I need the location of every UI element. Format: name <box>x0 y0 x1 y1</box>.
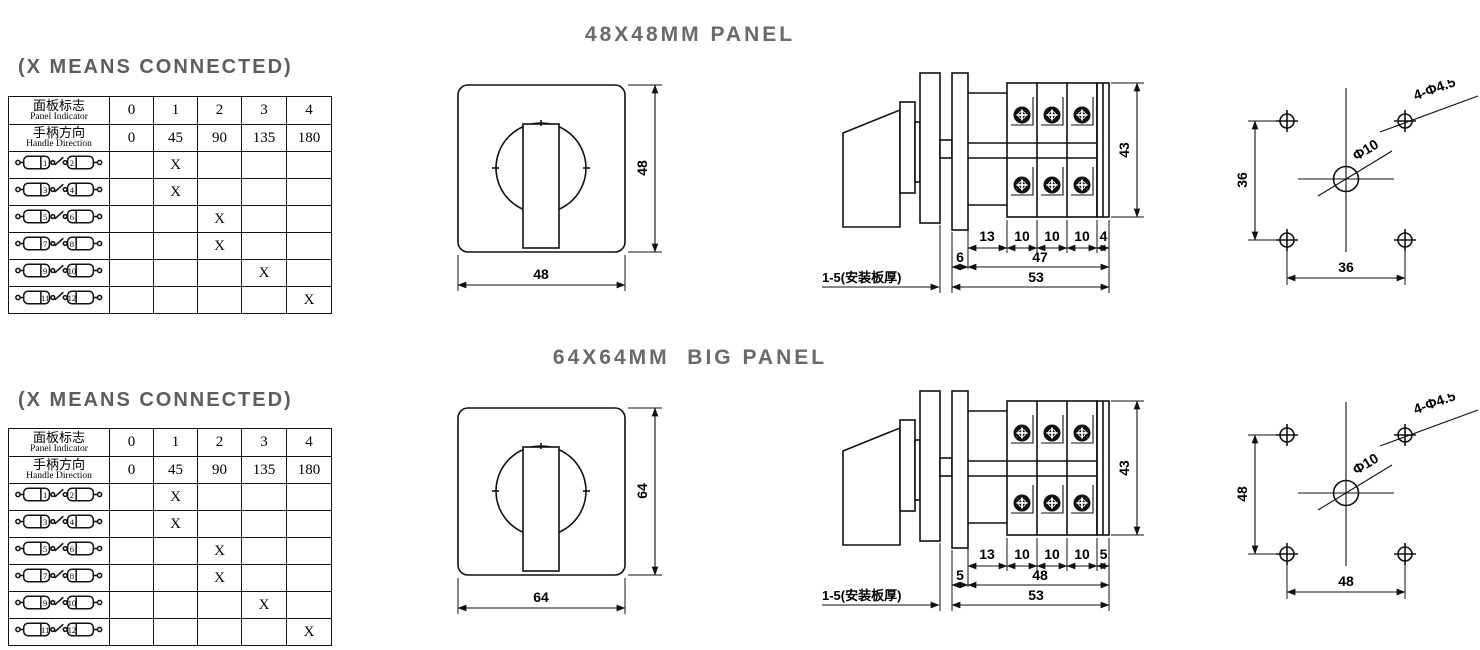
contact-row: 3 4 X <box>9 179 332 206</box>
mark-cell: X <box>242 260 287 287</box>
svg-text:48: 48 <box>1032 567 1048 583</box>
mark-cell <box>154 206 198 233</box>
contact-symbol: 7 8 <box>11 233 107 254</box>
mark-cell <box>198 511 242 538</box>
mark-cell <box>154 233 198 260</box>
direction-value: 180 <box>287 457 332 484</box>
svg-text:48: 48 <box>1338 573 1354 589</box>
terminal-number-left: 9 <box>43 266 47 276</box>
svg-text:43: 43 <box>1116 460 1132 476</box>
dimension-vertical-pitch: 36 <box>1234 121 1278 240</box>
screw-icon <box>1071 485 1093 513</box>
mark-cell <box>242 538 287 565</box>
mark-cell: X <box>242 592 287 619</box>
terminal-number-left: 1 <box>43 158 47 168</box>
svg-text:53: 53 <box>1028 587 1044 603</box>
mark-cell <box>198 592 242 619</box>
mark-cell <box>287 233 332 260</box>
table-header-row-indicator: 面板标志 Panel Indicator 0 1 2 3 4 <box>9 97 332 125</box>
dimension-height: 48 <box>628 85 662 252</box>
svg-text:1-5(安装板厚): 1-5(安装板厚) <box>822 588 901 603</box>
dimension-height: 64 <box>628 408 662 575</box>
contact-symbol: 9 10 <box>11 592 107 613</box>
contact-row: 5 6 X <box>9 206 332 233</box>
indicator-value: 2 <box>198 429 242 457</box>
handle-direction-cn: 手柄方向 <box>9 458 109 472</box>
svg-text:43: 43 <box>1116 142 1132 158</box>
dimension-body-height: 43 <box>1111 83 1144 217</box>
terminal-number-right: 12 <box>68 625 77 635</box>
contact-symbol: 1 2 <box>11 484 107 505</box>
contact-symbol-cell: 9 10 <box>9 260 110 287</box>
terminal-screws <box>1011 97 1093 195</box>
side-view-48: 43 13 10 10 10 4 6 47 53 1-5(安装板厚) <box>820 57 1155 305</box>
svg-text:36: 36 <box>1338 259 1354 275</box>
direction-value: 135 <box>242 457 287 484</box>
contact-symbol-cell: 7 8 <box>9 233 110 260</box>
contact-row: 1 2 X <box>9 484 332 511</box>
contact-symbol: 7 8 <box>11 565 107 586</box>
mark-cell <box>110 152 154 179</box>
mark-cell <box>110 592 154 619</box>
direction-value: 135 <box>242 125 287 152</box>
mark-cell <box>198 152 242 179</box>
contact-symbol: 1 2 <box>11 152 107 173</box>
svg-text:4-Φ4.5: 4-Φ4.5 <box>1411 394 1457 417</box>
panel-title-48: 48X48MM PANEL <box>430 23 950 47</box>
shaft <box>940 458 952 476</box>
mark-cell <box>110 179 154 206</box>
direction-value: 45 <box>154 457 198 484</box>
connection-table-48: 面板标志 Panel Indicator 0 1 2 3 4 手柄方向 Hand… <box>8 96 332 314</box>
svg-text:53: 53 <box>1028 269 1044 285</box>
knob-handle <box>843 428 900 545</box>
terminal-number-left: 3 <box>43 517 47 527</box>
screw-icon <box>1041 485 1063 513</box>
svg-text:36: 36 <box>1234 172 1250 188</box>
mark-cell <box>242 206 287 233</box>
corner-hole-icon <box>1394 110 1416 132</box>
front-plate <box>920 73 940 223</box>
terminal-number-right: 10 <box>68 266 77 276</box>
mark-cell <box>110 538 154 565</box>
mark-cell <box>242 152 287 179</box>
mark-cell <box>154 538 198 565</box>
terminal-number-left: 11 <box>41 625 49 635</box>
corner-hole-icon <box>1276 110 1298 132</box>
contact-symbol-cell: 7 8 <box>9 565 110 592</box>
svg-text:6: 6 <box>956 249 964 265</box>
terminal-number-right: 2 <box>70 158 74 168</box>
corner-hole-icon <box>1394 543 1416 565</box>
contact-symbol-cell: 5 6 <box>9 538 110 565</box>
connection-table-64: 面板标志 Panel Indicator 0 1 2 3 4 手柄方向 Hand… <box>8 428 332 646</box>
dimension-total-depth: 53 <box>952 269 1109 287</box>
svg-text:13: 13 <box>979 228 995 244</box>
mark-cell <box>242 565 287 592</box>
svg-text:5: 5 <box>1100 546 1108 562</box>
screw-icon <box>1041 97 1063 125</box>
mark-cell <box>287 565 332 592</box>
header-cell-panel-indicator: 面板标志 Panel Indicator <box>9 429 110 457</box>
mark-cell <box>198 287 242 314</box>
contact-symbol-cell: 1 2 <box>9 152 110 179</box>
svg-text:10: 10 <box>1044 546 1060 562</box>
svg-text:5: 5 <box>956 567 964 583</box>
front-view-64: 64 64 <box>440 383 700 623</box>
contact-symbol-cell: 1 2 <box>9 484 110 511</box>
mark-cell: X <box>287 619 332 646</box>
mark-cell <box>242 511 287 538</box>
mark-cell <box>287 179 332 206</box>
side-view-64: 43 13 10 10 10 5 5 48 53 1-5(安装板厚) <box>820 375 1155 623</box>
screw-icon <box>1011 167 1033 195</box>
switch-body <box>968 401 1109 535</box>
handle-bar <box>523 124 559 248</box>
terminal-number-left: 3 <box>43 185 47 195</box>
terminal-number-left: 7 <box>43 571 48 581</box>
svg-text:1-5(安装板厚): 1-5(安装板厚) <box>822 270 901 285</box>
mounting-plate-note: 1-5(安装板厚) <box>822 225 940 293</box>
contact-row: 3 4 X <box>9 511 332 538</box>
mark-cell <box>154 619 198 646</box>
panel-title-64: 64X64MM BIG PANEL <box>430 346 950 370</box>
contact-row: 7 8 X <box>9 565 332 592</box>
knob-bezel <box>900 102 915 193</box>
center-hole-icon: Φ10 <box>1298 402 1394 566</box>
contact-row: 11 12 X <box>9 619 332 646</box>
corner-hole-icon <box>1276 229 1298 251</box>
terminal-number-right: 6 <box>70 544 75 554</box>
contact-row: 5 6 X <box>9 538 332 565</box>
mark-cell <box>242 287 287 314</box>
table-header-row-direction: 手柄方向 Handle Direction 0 45 90 135 180 <box>9 125 332 152</box>
screw-icon <box>1071 415 1093 443</box>
contact-symbol: 5 6 <box>11 538 107 559</box>
front-plate <box>920 391 940 541</box>
panel-indicator-en: Panel Indicator <box>9 445 109 455</box>
mark-cell <box>110 511 154 538</box>
header-cell-panel-indicator: 面板标志 Panel Indicator <box>9 97 110 125</box>
contact-symbol: 3 4 <box>11 511 107 532</box>
mark-cell <box>154 592 198 619</box>
svg-text:10: 10 <box>1044 228 1060 244</box>
corner-hole-icon <box>1276 543 1298 565</box>
mark-cell: X <box>198 233 242 260</box>
drill-pattern-64: Φ10 4-Φ4.5 48 48 <box>1230 394 1480 619</box>
indicator-value: 4 <box>287 97 332 125</box>
drill-pattern-48: Φ10 4-Φ4.5 36 36 <box>1230 80 1480 305</box>
table-header-row-direction: 手柄方向 Handle Direction 0 45 90 135 180 <box>9 457 332 484</box>
terminal-screws <box>1011 415 1093 513</box>
mark-cell <box>287 511 332 538</box>
contact-symbol-cell: 3 4 <box>9 511 110 538</box>
svg-text:10: 10 <box>1014 228 1030 244</box>
dimension-vertical-pitch: 48 <box>1234 435 1278 554</box>
handle-direction-en: Handle Direction <box>9 472 109 482</box>
contact-symbol: 11 12 <box>11 287 107 308</box>
svg-text:47: 47 <box>1032 249 1048 265</box>
mark-cell <box>110 619 154 646</box>
contact-symbol-cell: 9 10 <box>9 592 110 619</box>
handle-direction-cn: 手柄方向 <box>9 126 109 140</box>
contact-symbol-cell: 5 6 <box>9 206 110 233</box>
corner-holes-callout: 4-Φ4.5 <box>1380 80 1478 132</box>
connected-note-48: (X MEANS CONNECTED) <box>18 56 293 79</box>
terminal-number-left: 5 <box>43 212 47 222</box>
mark-cell <box>287 206 332 233</box>
terminal-number-right: 2 <box>70 490 74 500</box>
direction-value: 0 <box>110 457 154 484</box>
terminal-number-left: 1 <box>43 490 47 500</box>
header-cell-handle-direction: 手柄方向 Handle Direction <box>9 457 110 484</box>
corner-hole-icon <box>1276 424 1298 446</box>
handle-bar <box>523 447 559 571</box>
direction-value: 45 <box>154 125 198 152</box>
contact-row: 1 2 X <box>9 152 332 179</box>
knob-handle <box>843 110 900 227</box>
dimension-horizontal-pitch: 36 <box>1287 249 1405 285</box>
dimension-width: 48 <box>458 255 625 291</box>
corner-hole-icon <box>1394 424 1416 446</box>
svg-text:4-Φ4.5: 4-Φ4.5 <box>1411 80 1457 103</box>
technical-drawing-page: 48X48MM PANEL (X MEANS CONNECTED) 面板标志 P… <box>0 0 1480 650</box>
mark-cell <box>154 260 198 287</box>
mark-cell <box>242 233 287 260</box>
rear-flange <box>952 391 968 548</box>
terminal-number-left: 11 <box>41 293 49 303</box>
mark-cell <box>198 260 242 287</box>
svg-text:48: 48 <box>1234 486 1250 502</box>
front-view-48: 48 48 <box>440 60 700 300</box>
indicator-value: 2 <box>198 97 242 125</box>
terminal-number-right: 12 <box>68 293 77 303</box>
mark-cell <box>287 592 332 619</box>
screw-icon <box>1071 97 1093 125</box>
screw-icon <box>1011 415 1033 443</box>
contact-symbol: 9 10 <box>11 260 107 281</box>
terminal-number-right: 6 <box>70 212 75 222</box>
svg-text:4: 4 <box>1100 228 1108 244</box>
contact-symbol-cell: 3 4 <box>9 179 110 206</box>
terminal-number-right: 8 <box>70 571 74 581</box>
center-hole-label: Φ10 <box>1350 450 1382 478</box>
mark-cell <box>287 484 332 511</box>
table-header-row-indicator: 面板标志 Panel Indicator 0 1 2 3 4 <box>9 429 332 457</box>
mark-cell: X <box>198 565 242 592</box>
handle-direction-en: Handle Direction <box>9 140 109 150</box>
mark-cell <box>287 260 332 287</box>
dimension-horizontal-pitch: 48 <box>1287 563 1405 599</box>
mark-cell <box>110 565 154 592</box>
mark-cell <box>110 484 154 511</box>
corner-hole-icon <box>1394 229 1416 251</box>
terminal-number-left: 9 <box>43 598 47 608</box>
indicator-value: 0 <box>110 97 154 125</box>
indicator-value: 1 <box>154 97 198 125</box>
screw-icon <box>1041 167 1063 195</box>
screw-icon <box>1041 415 1063 443</box>
svg-text:64: 64 <box>634 483 650 499</box>
terminal-number-right: 4 <box>70 517 75 527</box>
direction-value: 180 <box>287 125 332 152</box>
direction-value: 0 <box>110 125 154 152</box>
screw-icon <box>1011 485 1033 513</box>
shaft <box>940 140 952 158</box>
rear-flange <box>952 73 968 230</box>
mounting-plate-note: 1-5(安装板厚) <box>822 543 940 611</box>
svg-text:10: 10 <box>1074 228 1090 244</box>
mark-cell: X <box>154 511 198 538</box>
contact-row: 11 12 X <box>9 287 332 314</box>
header-cell-handle-direction: 手柄方向 Handle Direction <box>9 125 110 152</box>
svg-text:13: 13 <box>979 546 995 562</box>
contact-symbol-cell: 11 12 <box>9 287 110 314</box>
center-hole-label: Φ10 <box>1350 136 1382 164</box>
contact-symbol: 5 6 <box>11 206 107 227</box>
mark-cell <box>242 179 287 206</box>
direction-value: 90 <box>198 125 242 152</box>
panel-indicator-cn: 面板标志 <box>9 431 109 445</box>
svg-text:48: 48 <box>533 266 549 282</box>
mark-cell <box>198 484 242 511</box>
terminal-number-left: 5 <box>43 544 47 554</box>
switch-body <box>968 83 1109 217</box>
indicator-value: 4 <box>287 429 332 457</box>
dimension-total-depth: 53 <box>952 587 1109 605</box>
svg-text:10: 10 <box>1014 546 1030 562</box>
indicator-value: 3 <box>242 97 287 125</box>
direction-value: 90 <box>198 457 242 484</box>
contact-symbol-cell: 11 12 <box>9 619 110 646</box>
mark-cell <box>110 287 154 314</box>
mark-cell: X <box>287 287 332 314</box>
terminal-number-right: 8 <box>70 239 74 249</box>
mark-cell <box>287 152 332 179</box>
mark-cell <box>110 233 154 260</box>
dimension-body-height: 43 <box>1111 401 1144 535</box>
center-hole-icon: Φ10 <box>1298 88 1394 252</box>
mark-cell <box>242 484 287 511</box>
terminal-number-right: 4 <box>70 185 75 195</box>
mark-cell: X <box>154 152 198 179</box>
mark-cell <box>287 538 332 565</box>
screw-icon <box>1011 97 1033 125</box>
contact-row: 7 8 X <box>9 233 332 260</box>
indicator-value: 1 <box>154 429 198 457</box>
terminal-number-right: 10 <box>68 598 77 608</box>
mark-cell <box>154 565 198 592</box>
svg-text:48: 48 <box>634 160 650 176</box>
mark-cell <box>198 179 242 206</box>
panel-indicator-en: Panel Indicator <box>9 113 109 123</box>
mark-cell: X <box>154 179 198 206</box>
svg-text:64: 64 <box>533 589 549 605</box>
terminal-number-left: 7 <box>43 239 48 249</box>
screw-icon <box>1071 167 1093 195</box>
mark-cell <box>242 619 287 646</box>
mark-cell: X <box>154 484 198 511</box>
contact-row: 9 10 X <box>9 260 332 287</box>
mark-cell <box>198 619 242 646</box>
dimension-width: 64 <box>458 578 625 614</box>
mark-cell: X <box>198 206 242 233</box>
contact-symbol: 11 12 <box>11 619 107 640</box>
knob-bezel <box>900 420 915 511</box>
indicator-value: 3 <box>242 429 287 457</box>
svg-text:10: 10 <box>1074 546 1090 562</box>
corner-holes-callout: 4-Φ4.5 <box>1380 394 1478 446</box>
panel-indicator-cn: 面板标志 <box>9 99 109 113</box>
contact-row: 9 10 X <box>9 592 332 619</box>
mark-cell <box>110 206 154 233</box>
indicator-value: 0 <box>110 429 154 457</box>
mark-cell: X <box>198 538 242 565</box>
contact-symbol: 3 4 <box>11 179 107 200</box>
mark-cell <box>154 287 198 314</box>
connected-note-64: (X MEANS CONNECTED) <box>18 389 293 412</box>
mark-cell <box>110 260 154 287</box>
